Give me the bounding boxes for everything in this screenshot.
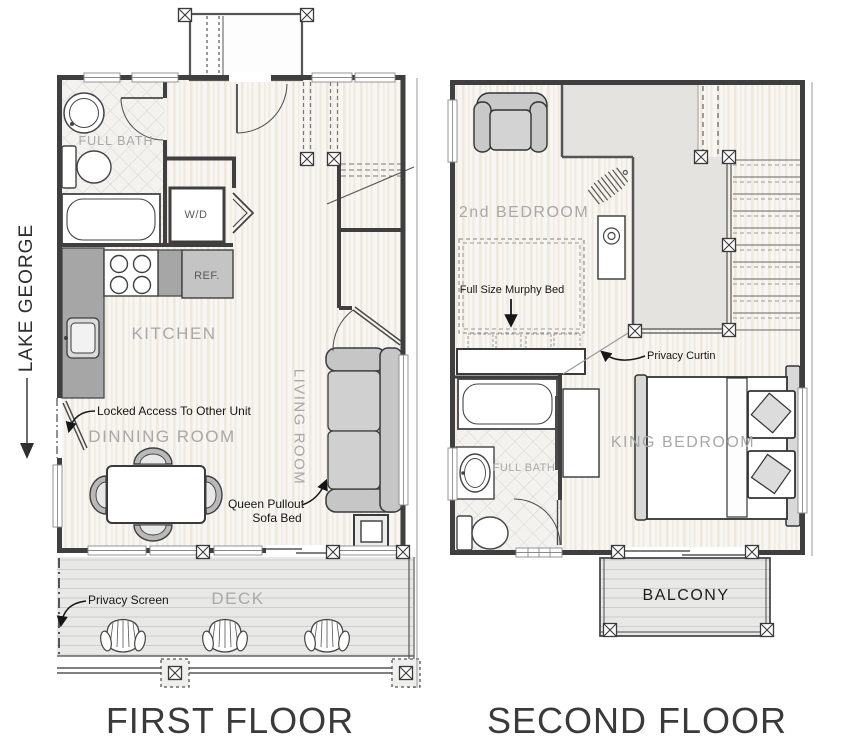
deck-label: DECK — [211, 589, 264, 609]
murphy-bed-cabinet — [457, 349, 585, 374]
second-floor-plan — [448, 80, 812, 637]
king-bedroom-label: KING BEDROOM — [611, 434, 755, 452]
privacy-curtain-label: Privacy Curtin — [647, 350, 715, 362]
queen-pullout-label-line1: Queen Pullout — [228, 497, 304, 511]
queen-pullout-label-line2: Sofa Bed — [252, 511, 301, 525]
second-bedroom-label: 2nd BEDROOM — [459, 204, 589, 222]
standing-mirror-icon — [598, 216, 625, 279]
pillow-icon — [748, 391, 795, 438]
dinning-room-label: DINNING ROOM — [88, 427, 235, 447]
living-room-label: LIVING ROOM — [291, 369, 308, 486]
first-floor-plan — [20, 9, 420, 689]
washer-dryer-label: W/D — [185, 209, 208, 221]
murphy-bed-label: Full Size Murphy Bed — [460, 284, 565, 296]
entry-porch — [190, 14, 302, 80]
round-sink-icon — [64, 93, 104, 133]
plan-linework — [0, 0, 853, 742]
balcony-sliding-door-icon — [624, 547, 746, 558]
deck-sliding-door-icon — [266, 545, 330, 556]
full-bath-1f-label: FULL BATH — [79, 134, 154, 148]
vanity-sink-icon — [456, 447, 494, 499]
stove-icon — [104, 250, 158, 296]
full-bath-2f-label: FULL BATH — [493, 462, 556, 474]
privacy-screen-label: Privacy Screen — [88, 593, 169, 607]
lake-george-arrow — [20, 378, 34, 459]
lake-george-label: LAKE GEORGE — [16, 224, 38, 372]
balcony-label: BALCONY — [643, 587, 730, 605]
second-floor-title: SECOND FLOOR — [487, 700, 787, 742]
sofa-icon — [326, 348, 402, 512]
floor-plan-canvas: LAKE GEORGE FULL BATH W/D REF. KITCHEN L… — [0, 0, 853, 742]
toilet-icon — [457, 516, 508, 550]
kitchen-sink-icon — [64, 318, 99, 358]
counter-top — [158, 250, 182, 296]
armchair-icon — [474, 93, 547, 152]
dining-table-icon — [107, 466, 205, 523]
entry-door-gap — [229, 72, 271, 82]
bathtub-icon — [62, 194, 160, 245]
end-table-icon — [354, 515, 388, 548]
first-floor-title: FIRST FLOOR — [106, 700, 354, 742]
refrigerator-label: REF. — [194, 270, 220, 282]
locked-access-label: Locked Access To Other Unit — [97, 404, 251, 418]
pillow-icon — [748, 451, 795, 498]
kitchen-label: KITCHEN — [131, 324, 216, 344]
bathtub-icon — [458, 379, 557, 429]
